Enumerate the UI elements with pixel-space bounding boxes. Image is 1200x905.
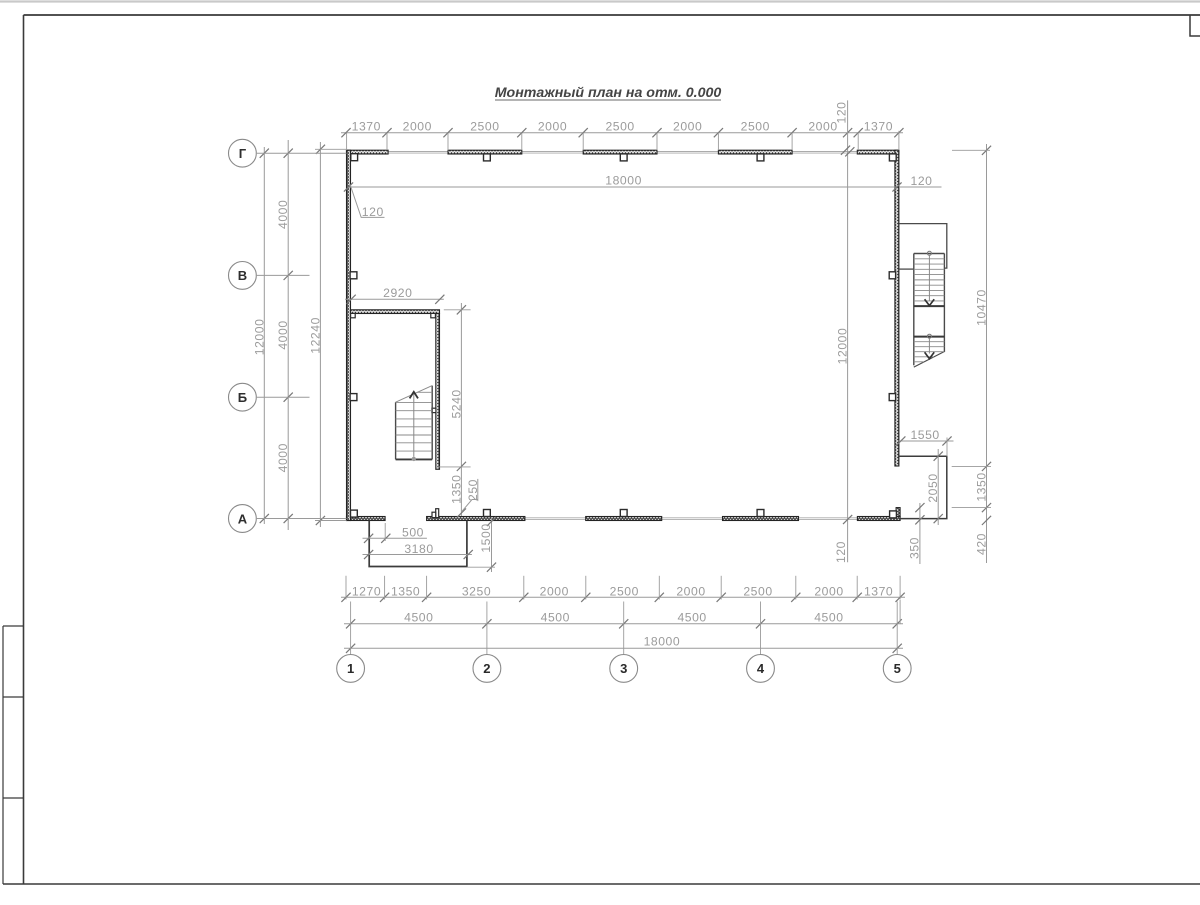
svg-text:2: 2 [483, 661, 490, 676]
svg-text:Г: Г [239, 146, 247, 161]
svg-text:2000: 2000 [540, 585, 569, 599]
svg-text:4500: 4500 [404, 611, 433, 625]
svg-text:500: 500 [402, 525, 424, 539]
svg-text:4500: 4500 [677, 611, 706, 625]
svg-text:120: 120 [911, 174, 933, 188]
svg-text:1350: 1350 [449, 475, 463, 504]
svg-text:2920: 2920 [383, 286, 412, 300]
svg-text:12240: 12240 [308, 317, 322, 354]
svg-text:120: 120 [834, 541, 848, 563]
svg-text:1370: 1370 [352, 120, 381, 134]
svg-text:10470: 10470 [974, 289, 988, 326]
svg-text:2000: 2000 [676, 585, 705, 599]
svg-text:2000: 2000 [403, 120, 432, 134]
svg-text:1350: 1350 [391, 585, 420, 599]
svg-text:2500: 2500 [470, 120, 499, 134]
svg-text:2000: 2000 [673, 120, 702, 134]
svg-text:В: В [238, 268, 247, 283]
svg-text:120: 120 [834, 102, 848, 124]
svg-text:2500: 2500 [605, 120, 634, 134]
svg-text:4000: 4000 [276, 320, 290, 349]
svg-text:420: 420 [974, 533, 988, 555]
svg-text:18000: 18000 [644, 635, 681, 649]
svg-text:4500: 4500 [541, 611, 570, 625]
svg-text:Б: Б [238, 390, 247, 405]
svg-text:4000: 4000 [276, 443, 290, 472]
svg-text:2000: 2000 [814, 585, 843, 599]
svg-text:120: 120 [362, 205, 384, 219]
svg-text:3250: 3250 [462, 585, 491, 599]
svg-text:3: 3 [620, 661, 627, 676]
svg-text:2000: 2000 [808, 120, 837, 134]
svg-text:12000: 12000 [835, 328, 849, 365]
svg-text:1550: 1550 [910, 428, 939, 442]
svg-text:4: 4 [757, 661, 765, 676]
svg-text:1: 1 [347, 661, 354, 676]
svg-text:2500: 2500 [741, 120, 770, 134]
svg-text:2500: 2500 [743, 585, 772, 599]
svg-text:250: 250 [466, 479, 480, 501]
svg-text:2000: 2000 [538, 120, 567, 134]
svg-text:2050: 2050 [926, 473, 940, 502]
svg-text:1270: 1270 [352, 585, 381, 599]
svg-text:350: 350 [908, 537, 922, 559]
svg-text:1500: 1500 [479, 523, 493, 552]
svg-text:4500: 4500 [814, 611, 843, 625]
svg-text:1370: 1370 [864, 585, 893, 599]
svg-text:2500: 2500 [610, 585, 639, 599]
svg-text:5240: 5240 [449, 389, 463, 418]
svg-text:5: 5 [894, 661, 901, 676]
svg-text:1370: 1370 [864, 120, 893, 134]
svg-text:18000: 18000 [605, 173, 642, 187]
svg-text:3180: 3180 [404, 542, 433, 556]
svg-text:1350: 1350 [974, 472, 988, 501]
svg-text:4000: 4000 [276, 200, 290, 229]
svg-text:А: А [238, 511, 248, 526]
svg-text:12000: 12000 [252, 319, 266, 356]
svg-text:Монтажный план на отм. 0.000: Монтажный план на отм. 0.000 [495, 85, 722, 101]
